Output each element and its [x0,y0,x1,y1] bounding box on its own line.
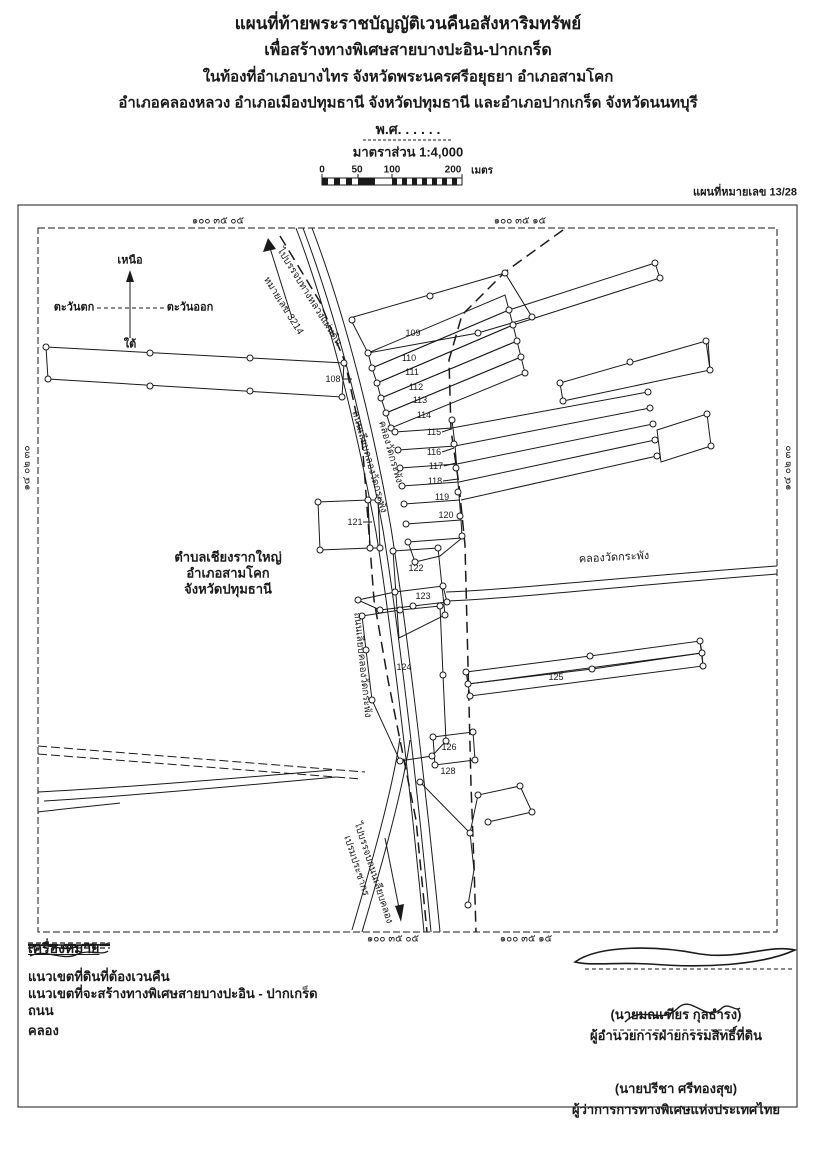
parcel-fan-outlines [350,263,660,428]
parcel-label-113: 113 [413,395,427,405]
expropriation-dashed-boundaries [280,230,563,932]
parcel-label-120: 120 [438,510,453,520]
legend-item-expressway-boundary: แนวเขตที่จะสร้างทางพิเศษสายบางปะอิน - ปา… [28,985,428,1001]
coord-left-edge: ๑๔ ๐๒ ๓๐ [21,445,33,490]
parcel-label-119: 119 [435,492,449,502]
parcel-label-115: 115 [427,427,441,437]
parcel-label-110: 110 [402,353,416,363]
legend-item-road: ถนน [28,1002,428,1018]
bottom-left-road [38,746,365,779]
parcel-label-126: 126 [441,742,456,752]
sheet-number: แผนที่หมายเลข 13/28 [693,187,797,200]
compass-rose [97,270,165,338]
canal-horizontal-lines [446,566,777,601]
parcel-label-118: 118 [428,476,442,486]
area-label-amphoe: อำเภอสามโคก [186,567,269,582]
legend-item-label: คลอง [28,1020,59,1041]
survey-markers [43,260,714,908]
signatory-1-title: ผู้อำนวยการฝ่ายกรรมสิทธิ์ที่ดิน [548,1025,804,1046]
page-title: แผนที่ท้ายพระราชบัญญัติเวนคืนอสังหาริมทร… [235,14,581,34]
bottom-left-canal [38,770,336,812]
parcel-label-109: 109 [405,328,420,338]
scale-label: มาตราส่วน 1:4,000 [353,146,463,161]
parcel-column-outlines [363,392,711,562]
coord-top-right: ๑๐๐ ๓๕ ๑๕ [494,215,546,227]
signatory-1-name: (นายมณเฑียร กุลธำรง) [548,1004,804,1025]
scale-tick-50: 50 [351,164,362,176]
strip-upper-right [560,341,710,401]
scale-tick-0: 0 [319,164,325,176]
parcel-label-123: 123 [415,591,430,601]
title-locality-line2: อำเภอคลองหลวง อำเภอเมืองปทุมธานี จังหวัด… [118,94,697,111]
page-subtitle: เพื่อสร้างทางพิเศษสายบางปะอิน-ปากเกร็ด [264,42,552,60]
parcel-label-111: 111 [405,367,419,377]
coord-top-left: ๑๐๐ ๓๕ ๐๕ [192,215,244,227]
parcel-label-122: 122 [408,563,423,573]
map-sheet-page: แผนที่ท้ายพระราชบัญญัติเวนคืนอสังหาริมทร… [0,0,816,1150]
parcel-label-121: 121 [347,517,362,527]
signatory-2-name: (นายปรีชา ศรีทองสุข) [548,1078,804,1099]
legend: เครื่องหมาย แนวเขตที่ดินที่ต้องเวนคืน แน… [28,938,428,1042]
legend-item-canal: คลอง [28,1019,428,1041]
compass-east-label: ตะวันออก [167,302,214,315]
signature-block: (นายมณเฑียร กุลธำรง) ผู้อำนวยการฝ่ายกรรม… [548,968,804,1134]
parcel-label-116: 116 [427,447,441,457]
coord-bottom-right: ๑๐๐ ๓๕ ๑๕ [500,933,552,945]
area-label-tambon: ตำบลเชียงรากใหญ่ [174,551,281,566]
coord-right-edge: ๑๔ ๐๒ ๓๐ [782,445,794,490]
scale-tick-100: 100 [384,164,401,176]
legend-item-label: แนวเขตที่จะสร้างทางพิเศษสายบางปะอิน - ปา… [28,983,318,1004]
parcel-label-117: 117 [429,461,443,471]
compass-north-label: เหนือ [117,255,142,268]
signatory-2-title: ผู้ว่าการการทางพิเศษแห่งประเทศไทย [548,1099,804,1120]
parcel-label-128: 128 [440,766,455,776]
parcel-108-outline [46,347,352,397]
parcel-label-112: 112 [409,382,423,392]
signature-flourish-1 [575,948,795,969]
title-locality-line1: ในท้องที่อำเภอบางไทร จังหวัดพระนครศรีอยุ… [203,68,614,85]
wavy-line-symbol [28,938,110,960]
parcel-label-108: 108 [325,374,340,384]
parcel-label-114: 114 [417,410,431,420]
area-label-changwat: จังหวัดปทุมธานี [184,583,272,598]
scale-tick-200: 200 [445,164,462,176]
scale-unit: เมตร [471,165,493,177]
era-label: พ.ศ. . . . . . [376,121,441,137]
legend-item-label: ถนน [28,1000,54,1021]
compass-south-label: ใต้ [124,339,137,352]
parcel-label-125: 125 [548,672,563,682]
parcel-label-124: 124 [396,662,411,672]
compass-west-label: ตะวันตก [54,302,95,315]
